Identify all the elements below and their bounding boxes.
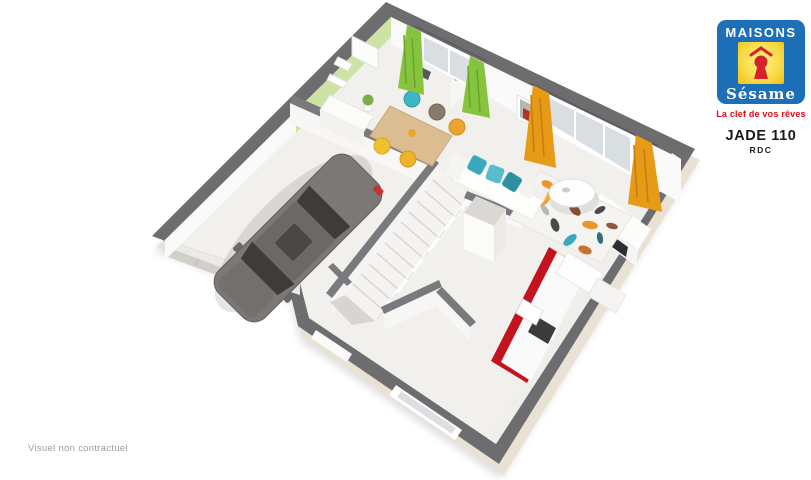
plan-level: RDC	[701, 145, 811, 155]
logo-box: MAISONS Sésame	[717, 20, 805, 104]
floor-plan-3d	[0, 0, 811, 480]
plan-label: JADE 110 RDC	[701, 128, 811, 155]
floorplan-visual-page: MAISONS Sésame La clef de vos rêves JADE…	[0, 0, 811, 480]
plan-model-title: JADE 110	[701, 128, 811, 144]
keyhole-icon	[744, 45, 778, 81]
disclaimer-text: Visuel non contractuel	[28, 443, 128, 454]
logo-tagline: La clef de vos rêves	[701, 109, 811, 119]
logo-yellow-square	[738, 42, 784, 84]
plant	[363, 95, 374, 112]
brand-logo: MAISONS Sésame La clef de vos rêves	[701, 20, 811, 119]
logo-brand-bottom: Sésame	[726, 85, 796, 103]
logo-brand-top: MAISONS	[725, 25, 796, 40]
